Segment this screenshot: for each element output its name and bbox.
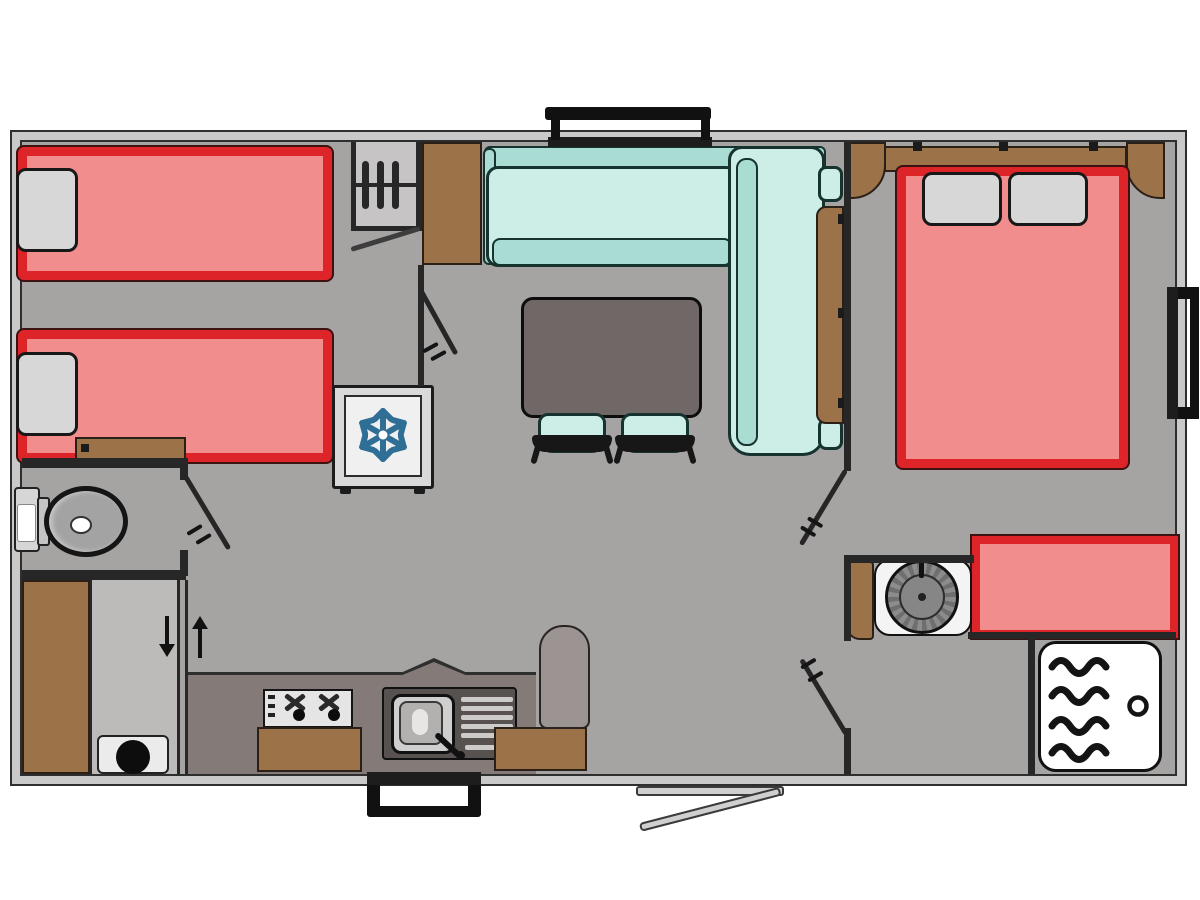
- foot-shelf-latch: [81, 444, 89, 452]
- pillow-2: [16, 352, 78, 436]
- wall-bench-shower: [968, 632, 1176, 639]
- drainer: [461, 697, 513, 702]
- tall-wardrobe: [22, 580, 90, 774]
- dining-table: [521, 297, 702, 418]
- fridge-foot-right: [414, 488, 425, 494]
- wall-bed-basin: [844, 555, 974, 563]
- washbasin-drain: [918, 593, 926, 601]
- headboard-latch-2: [999, 142, 1008, 151]
- fridge-foot-left: [340, 488, 351, 494]
- shower-drain: [1130, 698, 1147, 715]
- toilet-flush-button: [70, 516, 92, 534]
- headboard-latch-1: [913, 142, 922, 151]
- toilet-cistern-lid: [17, 504, 36, 542]
- foot-shelf: [75, 437, 186, 460]
- wall-twin-living: [418, 265, 424, 386]
- top-window-sill: [548, 137, 712, 147]
- hanger-2: [377, 161, 384, 209]
- up-arrow: [191, 616, 209, 658]
- wall-hall-kitchen: [177, 580, 188, 774]
- shower-waves: [1040, 643, 1160, 770]
- peninsula-counter: [539, 625, 590, 729]
- bottom-window-sill: [367, 772, 481, 785]
- sofa-tab-top: [818, 166, 843, 202]
- wall-master-upper: [844, 142, 851, 471]
- headboard-latch-3: [1089, 142, 1098, 151]
- wall-shower-left: [1028, 639, 1035, 774]
- pillow-1: [16, 168, 78, 252]
- hanger-3: [392, 161, 399, 209]
- hob: [263, 689, 353, 728]
- wall-twin-wc: [22, 458, 186, 468]
- pillow-4: [1008, 172, 1088, 226]
- overhead-cabinet: [422, 142, 482, 265]
- stool-2: [615, 413, 695, 465]
- hob-knob-1: [293, 709, 305, 721]
- pillow-3: [922, 172, 1002, 226]
- bench-seat: [972, 536, 1178, 638]
- snowflake-icon: [355, 407, 411, 463]
- floor-plan: [0, 0, 1200, 900]
- hanger-1: [362, 161, 369, 209]
- washbasin-tap: [919, 561, 924, 578]
- base-cabinet-left: [257, 727, 362, 772]
- sofa-strip-vertical: [736, 158, 758, 446]
- wall-wc-bottom: [22, 570, 186, 580]
- wall-master-mid: [844, 556, 851, 641]
- appliance-dial: [116, 740, 150, 774]
- wall-master-lower: [844, 728, 851, 774]
- right-window-sill: [1167, 287, 1178, 419]
- stool-1: [532, 413, 612, 465]
- base-cabinet-right: [494, 727, 587, 771]
- top-window-frame: [545, 107, 711, 120]
- hob-knob-2: [328, 709, 340, 721]
- sofa-front-lip: [492, 238, 732, 266]
- down-arrow: [158, 616, 176, 658]
